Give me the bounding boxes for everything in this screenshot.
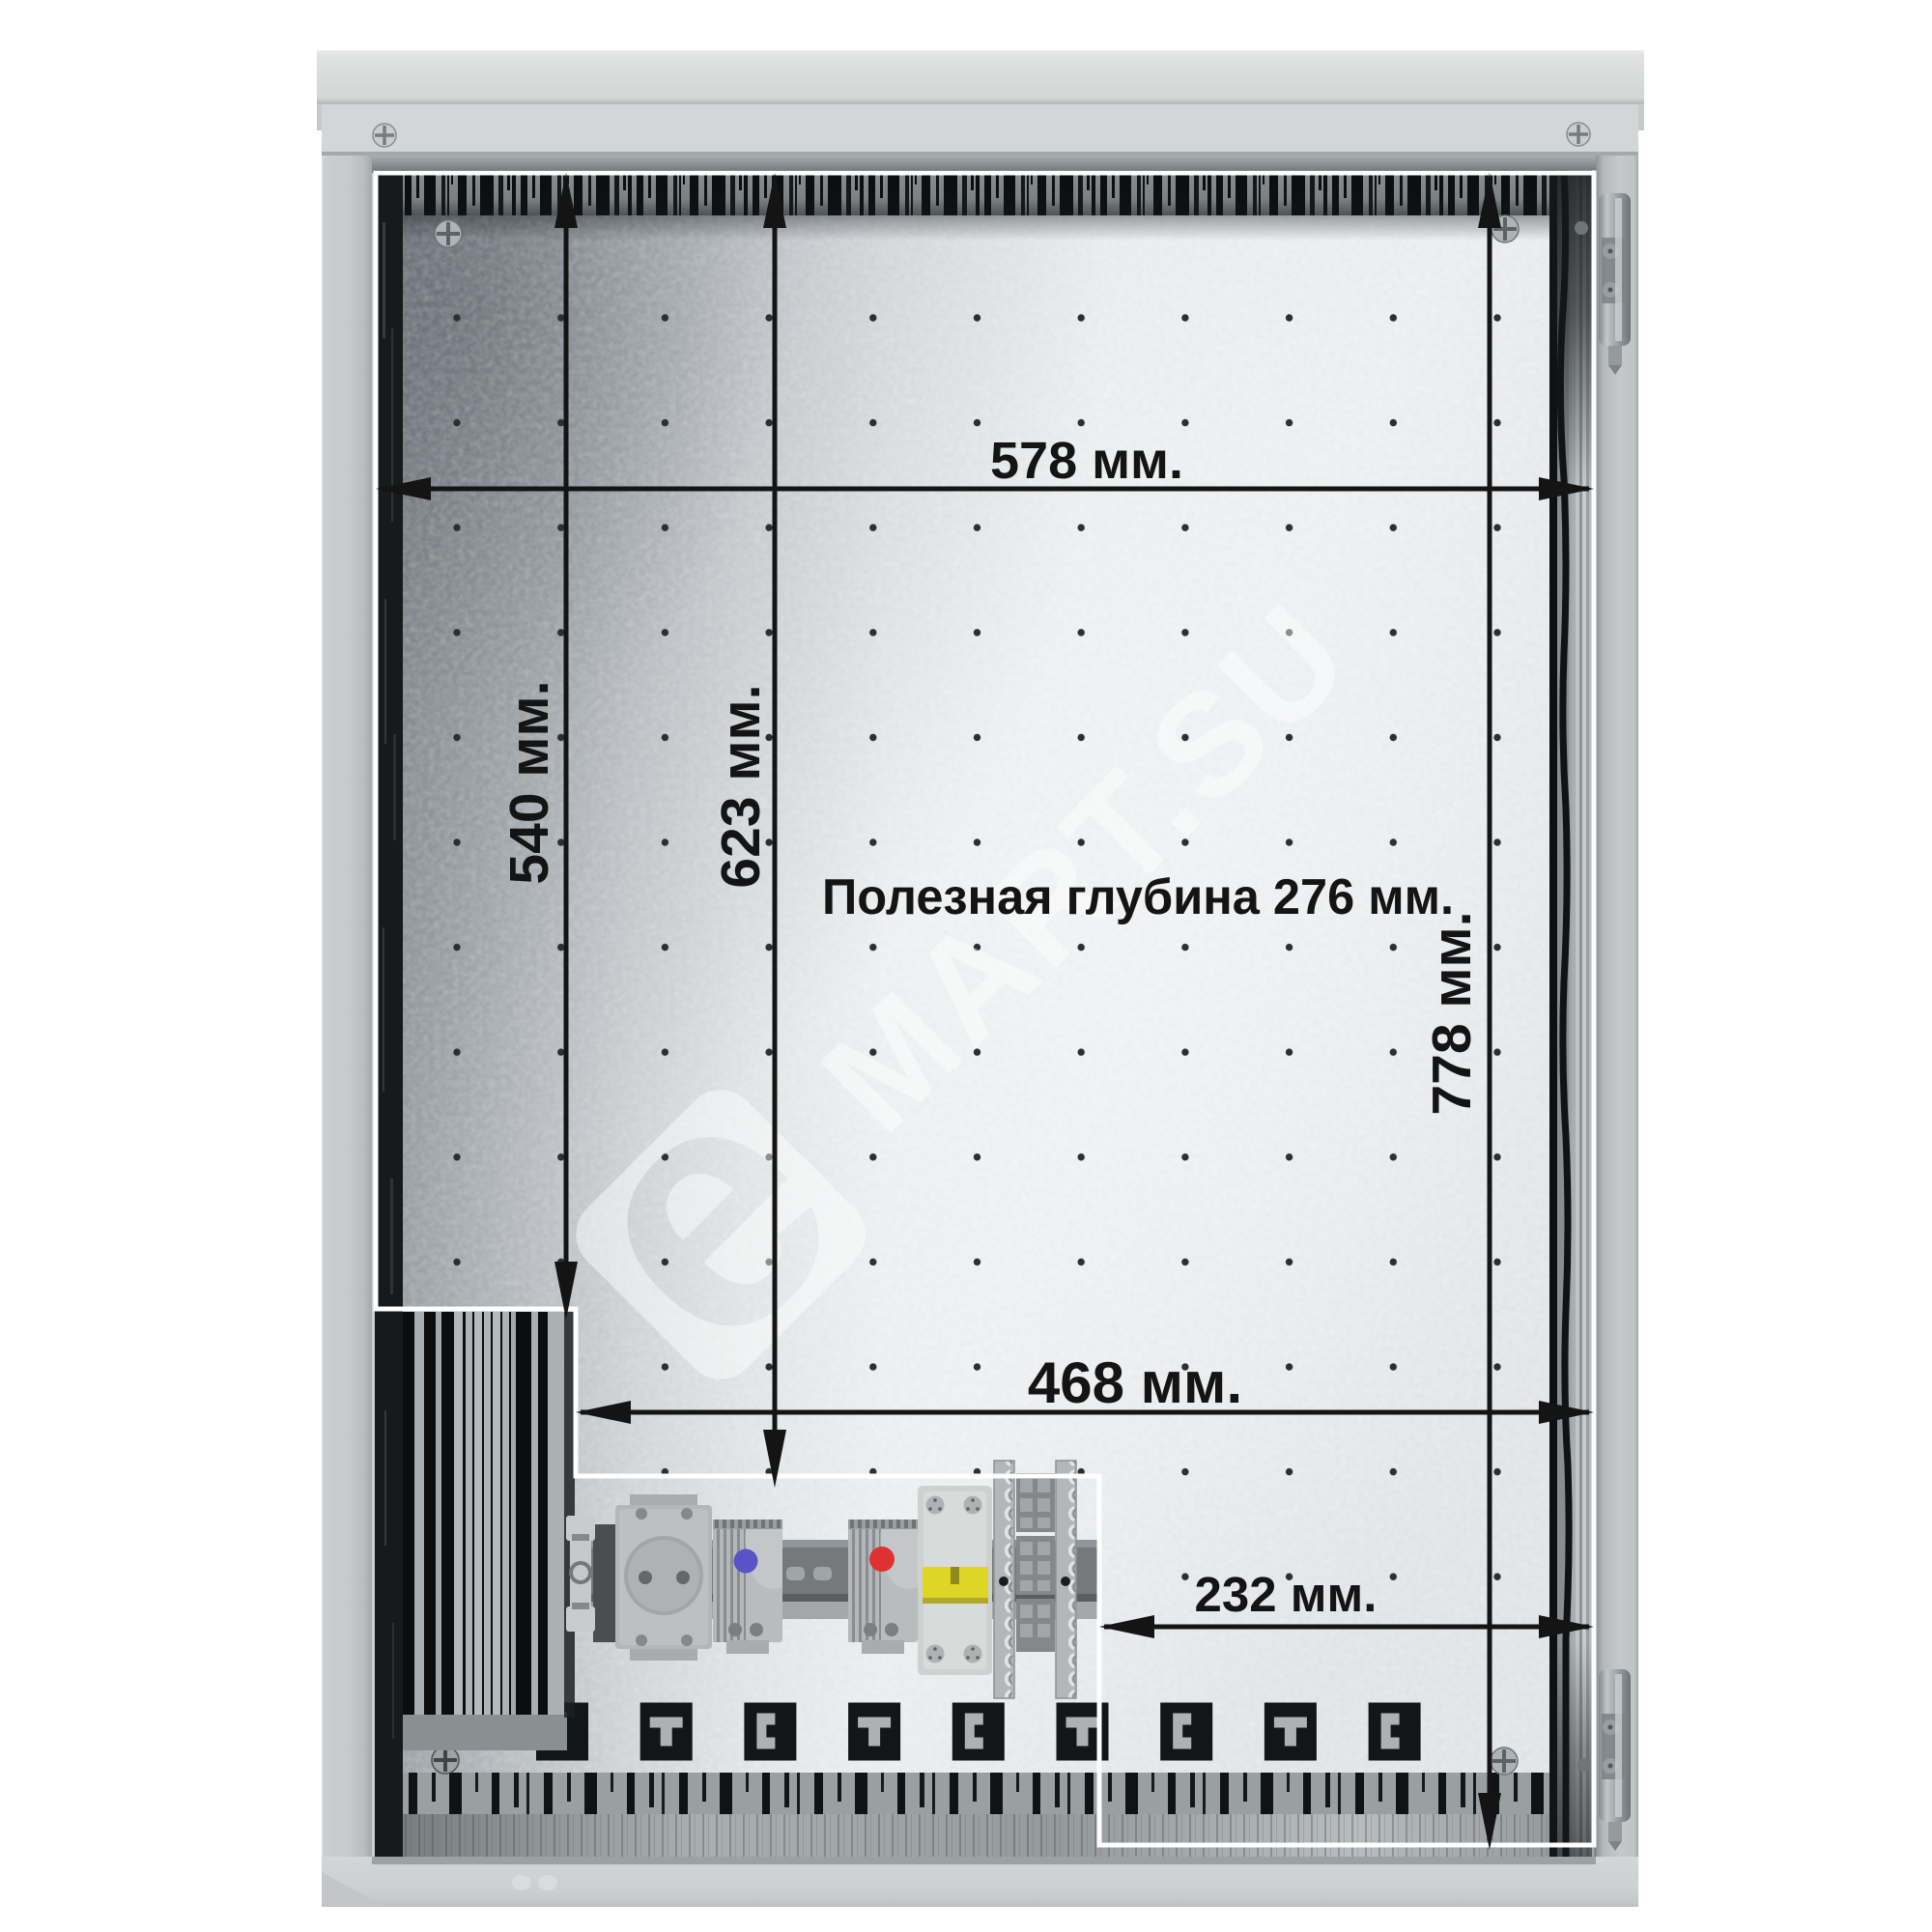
svg-text:Полезная глубина 276 мм.: Полезная глубина 276 мм. [822, 869, 1454, 925]
svg-text:578 мм.: 578 мм. [990, 432, 1183, 490]
svg-text:468 мм.: 468 мм. [1028, 1350, 1242, 1415]
svg-text:232 мм.: 232 мм. [1195, 1567, 1378, 1622]
svg-text:623 мм.: 623 мм. [710, 684, 772, 888]
svg-text:778 мм.: 778 мм. [1421, 911, 1483, 1115]
svg-text:540 мм.: 540 мм. [498, 680, 560, 884]
